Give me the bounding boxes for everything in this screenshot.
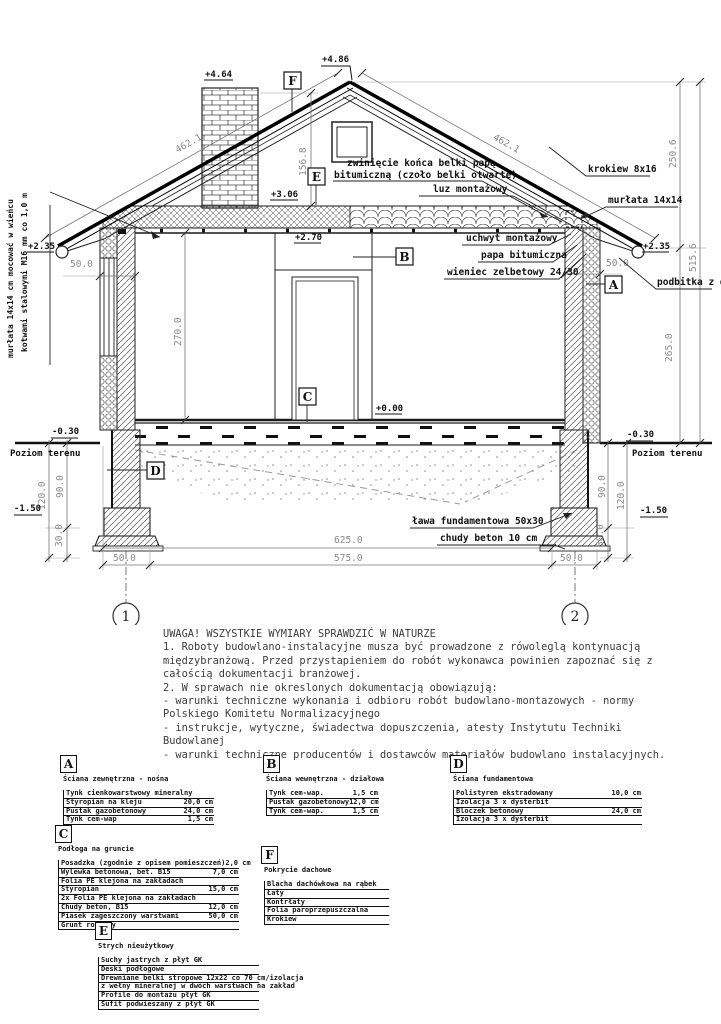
legend-d-title: Ściana fundamentowa bbox=[453, 775, 642, 783]
dim-room-height: 270.0 bbox=[173, 317, 184, 346]
legend-table-e: E Strych nieużytkowy Suchy jastrych z pł… bbox=[95, 922, 259, 1010]
level-ground-left: -0.30 bbox=[52, 427, 79, 437]
notes-title: UWAGA! WSZYSTKIE WYMIARY SPRAWDZIĆ W NAT… bbox=[163, 628, 719, 641]
legend-f-title: Pokrycie dachowe bbox=[264, 866, 389, 874]
notes-line: Budowlanej bbox=[163, 735, 719, 748]
foundation-wall-left bbox=[112, 430, 140, 508]
level-ridge: +4.86 bbox=[322, 55, 349, 65]
notes-line: międzybranżową. Przed przystapieniem do … bbox=[163, 655, 719, 668]
legend-c-marker: C bbox=[55, 825, 72, 843]
floor-insulation bbox=[135, 423, 565, 445]
annotation-anchor-2: murłata 14x14 cm mocować w wieńcu bbox=[5, 199, 15, 358]
ceiling-insulation-left bbox=[103, 206, 350, 228]
ground-label-right: Poziom terenu bbox=[632, 448, 702, 459]
table-row: Sufit podwieszany z płyt GK bbox=[99, 1001, 259, 1010]
callout-luz: luz montażowy bbox=[433, 184, 508, 195]
dim-total-width: 625.0 bbox=[334, 535, 363, 546]
level-foundation-right: -1.50 bbox=[640, 506, 667, 516]
dim-roof-left: 462.1 bbox=[174, 132, 205, 156]
legend-e-title: Strych nieużytkowy bbox=[98, 942, 259, 950]
dim-found-right-30: 30.0 bbox=[595, 524, 606, 547]
callout-beam-wrap-2: bitumiczną (czoło belki otwarte) bbox=[334, 170, 517, 181]
dim-right-upper: 250.6 bbox=[668, 139, 679, 168]
subsoil-fill bbox=[130, 447, 575, 502]
callout-chudy: chudy beton 10 cm bbox=[440, 533, 538, 544]
notes-line: - warunki techniczne wykonania i odbioru… bbox=[163, 695, 719, 708]
gutter-left bbox=[56, 246, 68, 258]
dim-foot-left: 50.0 bbox=[113, 553, 136, 564]
table-row: Tynk cem-wap.1,5 cm bbox=[267, 808, 379, 817]
axis-2: 2 bbox=[571, 609, 580, 625]
dim-roof-right: 462.1 bbox=[491, 132, 522, 156]
ground-label-left: Poziom terenu bbox=[10, 448, 80, 459]
wall-left-inner bbox=[117, 228, 135, 430]
legend-table-c: C Podłoga na gruncie Posadzka (zgodnie z… bbox=[55, 825, 239, 930]
wall-right-inner bbox=[565, 228, 583, 430]
ceiling-joists bbox=[160, 229, 541, 233]
table-row: Krokiew bbox=[265, 916, 389, 925]
level-chimney-top: +4.64 bbox=[205, 70, 233, 80]
level-ceiling: +2.70 bbox=[295, 233, 322, 243]
table-row: Tynk cem-wap1,5 cm bbox=[64, 816, 214, 825]
dim-wall-left: 50.0 bbox=[70, 259, 93, 270]
callout-murlata: murłata 14x14 bbox=[608, 195, 683, 206]
dim-right-lower: 265.0 bbox=[664, 333, 675, 362]
callout-podbitka: podbitka z desek bbox=[657, 277, 721, 288]
level-foundation-left: -1.50 bbox=[14, 504, 41, 514]
dim-found-right-120: 120.0 bbox=[616, 481, 627, 510]
legend-table-b: B Ściana wewnętrzna - działowa Tynk cem-… bbox=[263, 755, 384, 816]
marker-d: D bbox=[150, 464, 160, 478]
marker-e: E bbox=[312, 170, 321, 184]
wall-right-outer bbox=[583, 228, 600, 443]
level-eave-left: +2.35 bbox=[28, 242, 55, 252]
legend-table-a: A Ściana zewnętrzna - nośna Tynk cienkow… bbox=[60, 755, 214, 825]
legend-e-marker: E bbox=[95, 922, 112, 940]
dim-inner-width: 575.0 bbox=[334, 553, 363, 564]
marker-f: F bbox=[288, 74, 297, 88]
callout-uchwyt: uchwyt montażowy bbox=[466, 233, 558, 244]
general-notes: UWAGA! WSZYSTKIE WYMIARY SPRAWDZIĆ W NAT… bbox=[163, 628, 719, 762]
callout-wieniec: wieniec zelbetowy 24/30 bbox=[447, 267, 579, 278]
marker-c: C bbox=[303, 390, 313, 404]
marker-b: B bbox=[399, 250, 409, 264]
callout-krokiew: krokiew 8x16 bbox=[588, 164, 657, 175]
legend-c-title: Podłoga na gruncie bbox=[58, 845, 239, 853]
notes-line: całością dokumentacji branżowej. bbox=[163, 668, 719, 681]
notes-line: 2. W sprawach nie okreslonych dokumentac… bbox=[163, 682, 719, 695]
dim-found-right-90: 90.0 bbox=[597, 475, 608, 498]
legend-a-marker: A bbox=[60, 755, 77, 773]
legend-a-title: Ściana zewnętrzna - nośna bbox=[63, 775, 214, 783]
level-attic-floor: +3.06 bbox=[271, 190, 298, 200]
callout-beam-wrap-1: zwinięcie końca belki papą bbox=[347, 158, 496, 169]
footing-right bbox=[551, 508, 597, 536]
legend-table-f: F Pokrycie dachowe Blacha dachówkowa na … bbox=[261, 846, 389, 925]
ceiling-insulation-right bbox=[350, 206, 597, 228]
dim-found-left-30: 30.0 bbox=[54, 524, 65, 547]
footing-left bbox=[104, 508, 150, 536]
callout-papa: papa bitumiczna bbox=[481, 250, 567, 261]
table-row: Izolacja 3 x dysterbit bbox=[454, 816, 642, 825]
level-eave-right: +2.35 bbox=[643, 242, 670, 252]
dim-foot-right: 50.0 bbox=[560, 553, 583, 564]
legend-b-title: Ściana wewnętrzna - działowa bbox=[266, 775, 384, 783]
legend-f-marker: F bbox=[261, 846, 278, 864]
notes-line: Polskiego Komitetu Normalizacyjnego bbox=[163, 708, 719, 721]
legend-d-marker: D bbox=[450, 755, 467, 773]
marker-a: A bbox=[608, 278, 619, 292]
level-floor: +0.00 bbox=[376, 404, 403, 414]
section-drawing: 625.0 50.0 575.0 50.0 1 2 90.0 120.0 30.… bbox=[0, 0, 721, 625]
attic-window bbox=[332, 122, 372, 162]
legend-b-marker: B bbox=[263, 755, 280, 773]
notes-line: 1. Roboty budowlano-instalacyjne musza b… bbox=[163, 641, 719, 654]
callout-lawa: ława fundamentowa 50x30 bbox=[412, 516, 544, 527]
level-ground-right: -0.30 bbox=[627, 430, 654, 440]
axis-1: 1 bbox=[122, 609, 131, 625]
dim-right-total: 515.6 bbox=[688, 243, 699, 272]
annotation-anchor-1: kotwami stalowymi M16 mm co 1,0 m bbox=[19, 193, 29, 352]
notes-line: - instrukcje, wytyczne, świadectwa dopus… bbox=[163, 722, 719, 735]
legend-table-d: D Ściana fundamentowa Polistyren ekstrad… bbox=[450, 755, 642, 825]
architectural-section-sheet: 625.0 50.0 575.0 50.0 1 2 90.0 120.0 30.… bbox=[0, 0, 721, 1024]
dim-found-left-90: 90.0 bbox=[55, 475, 66, 498]
